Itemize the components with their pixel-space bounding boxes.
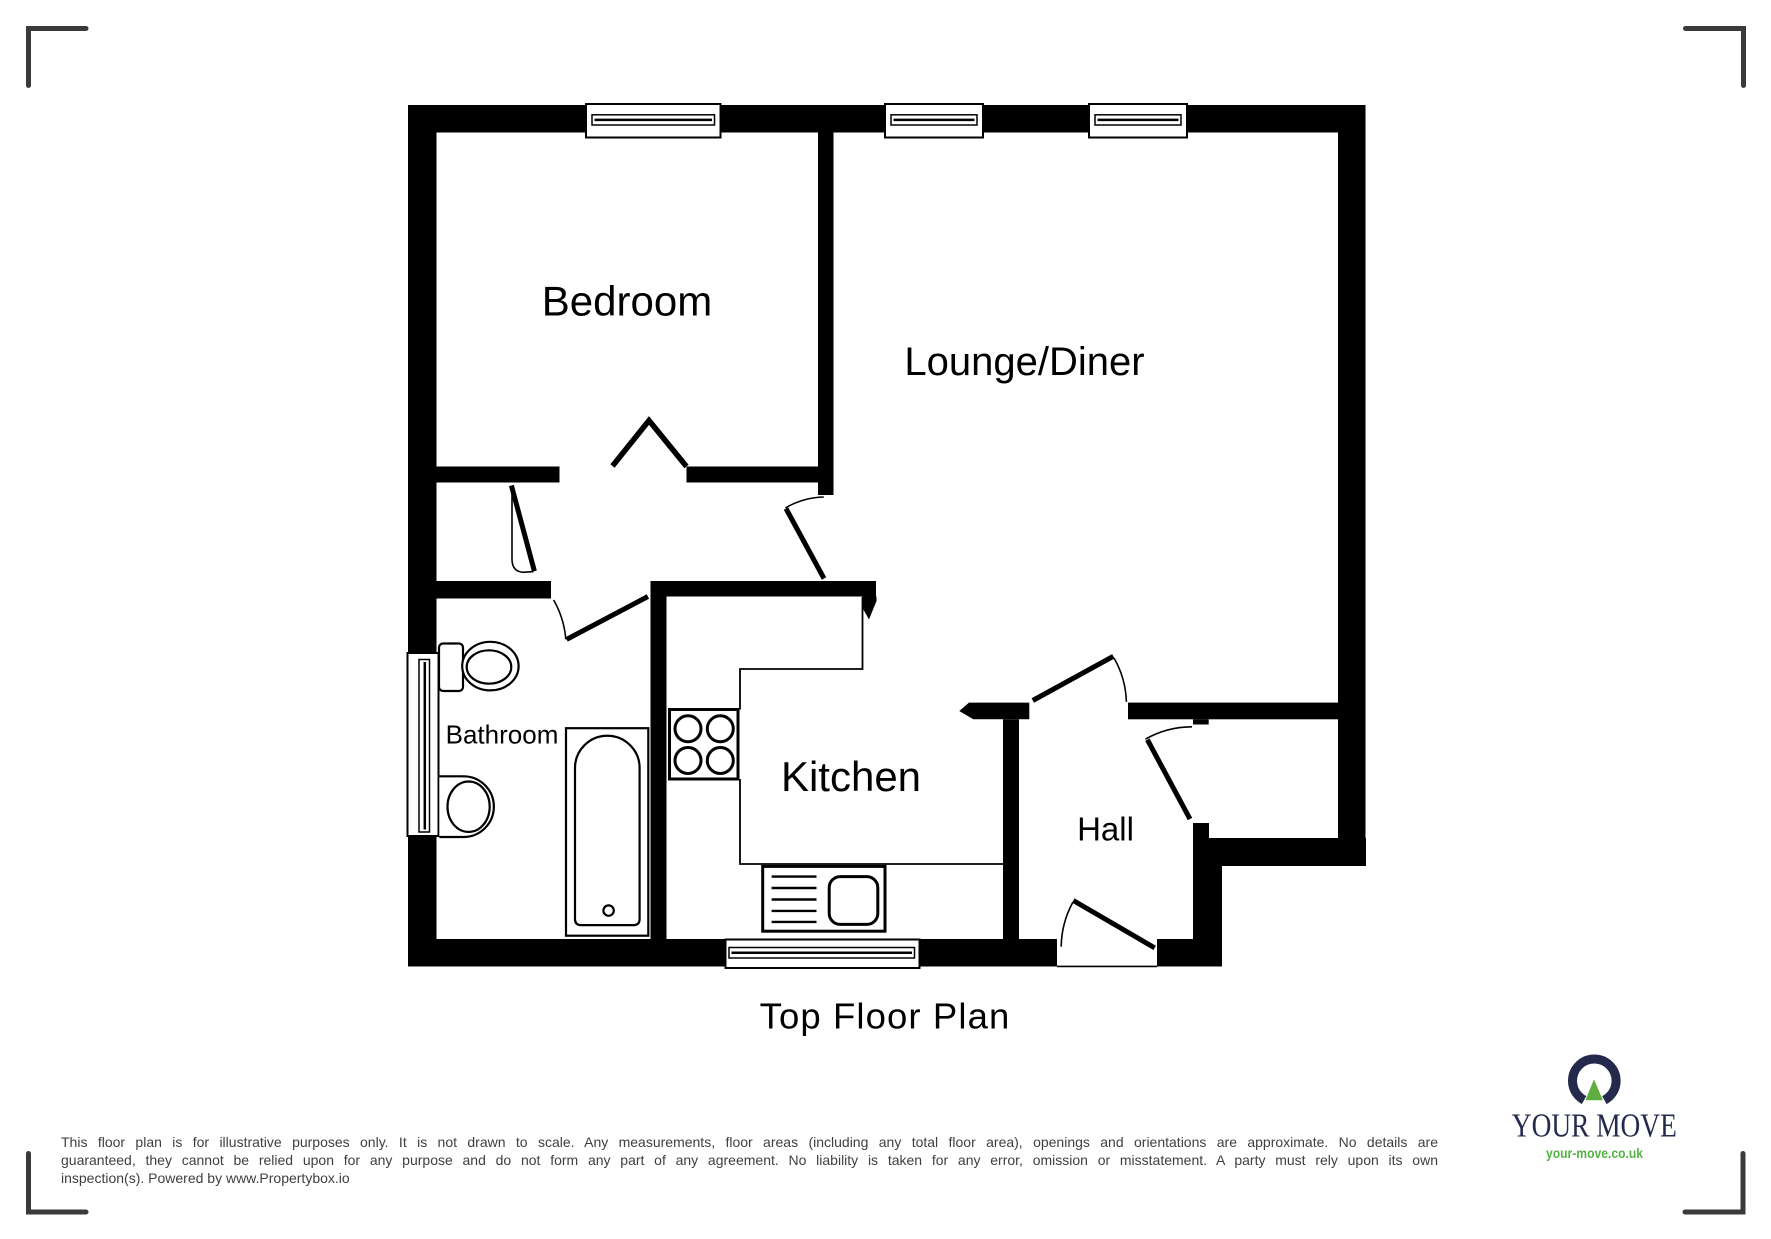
svg-text:Bedroom: Bedroom <box>542 278 712 325</box>
svg-text:Bathroom: Bathroom <box>446 720 559 750</box>
svg-text:your-move.co.uk: your-move.co.uk <box>1546 1146 1643 1161</box>
svg-text:Hall: Hall <box>1077 811 1134 848</box>
svg-text:Top Floor Plan: Top Floor Plan <box>760 996 1011 1037</box>
svg-text:Lounge/Diner: Lounge/Diner <box>904 340 1144 384</box>
svg-text:Kitchen: Kitchen <box>781 753 921 800</box>
svg-text:YOUR MOVE: YOUR MOVE <box>1512 1108 1677 1145</box>
